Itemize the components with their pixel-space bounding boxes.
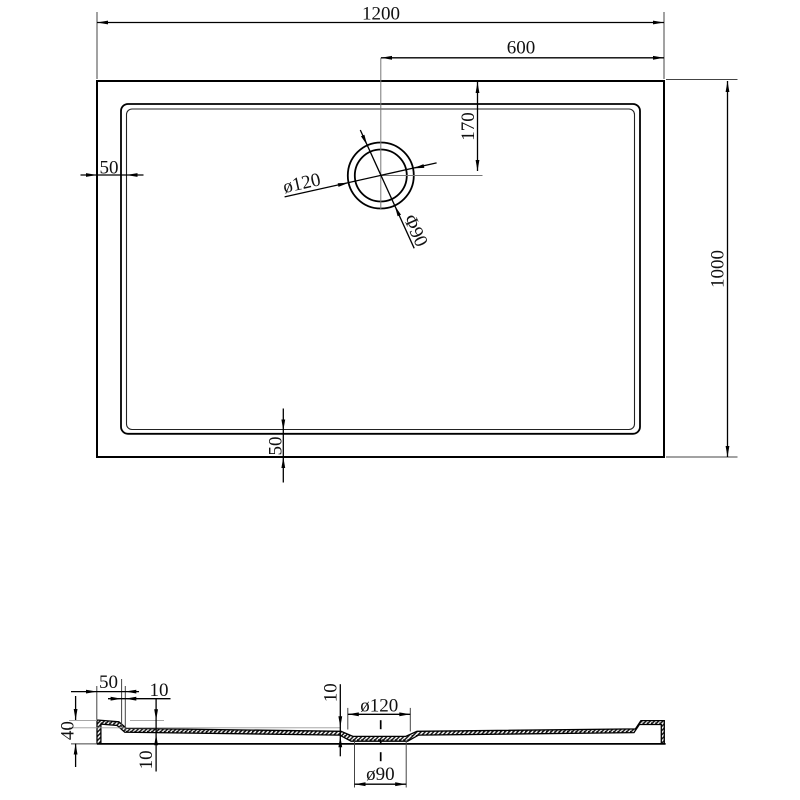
svg-text:50: 50 bbox=[266, 437, 287, 456]
svg-text:1000: 1000 bbox=[708, 250, 729, 288]
svg-text:50: 50 bbox=[99, 672, 118, 693]
svg-text:ø120: ø120 bbox=[360, 695, 398, 716]
svg-text:40: 40 bbox=[58, 721, 79, 740]
svg-text:10: 10 bbox=[150, 680, 169, 701]
svg-text:600: 600 bbox=[507, 38, 536, 59]
svg-text:ø90: ø90 bbox=[366, 764, 395, 785]
svg-text:170: 170 bbox=[458, 112, 479, 141]
svg-text:50: 50 bbox=[100, 158, 119, 179]
svg-text:1200: 1200 bbox=[362, 4, 400, 25]
svg-text:10: 10 bbox=[320, 683, 341, 702]
svg-text:10: 10 bbox=[136, 750, 157, 769]
